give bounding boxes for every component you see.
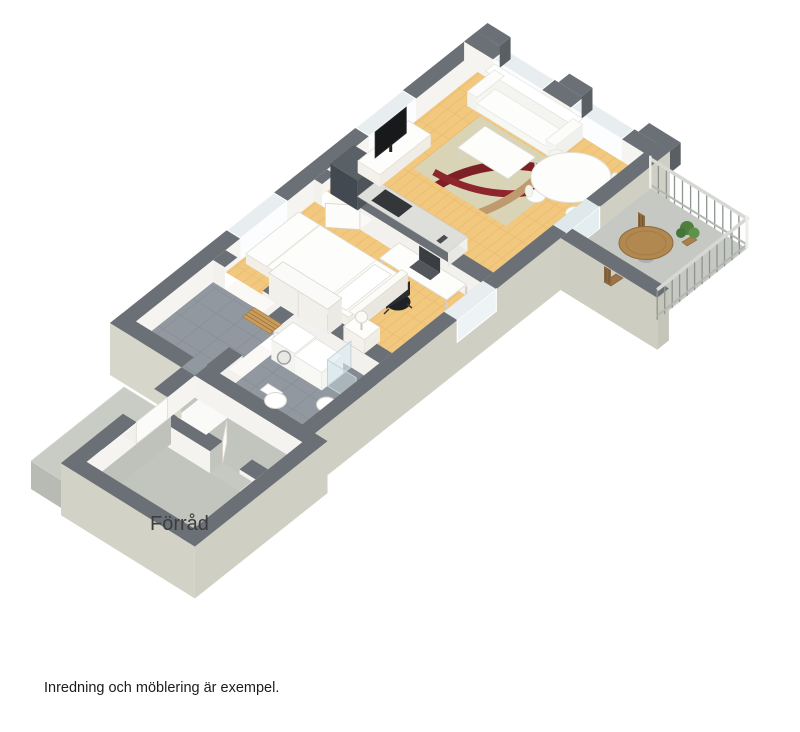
storage-room-label: Förråd [150,513,209,535]
caption-text: Inredning och möblering är exempel. [44,680,279,696]
floorplan-3d-render: Förråd Inredning och möblering är exempe… [0,0,800,732]
floorplan-page: Förråd Inredning och möblering är exempe… [0,0,800,732]
table-lamp [356,311,368,323]
